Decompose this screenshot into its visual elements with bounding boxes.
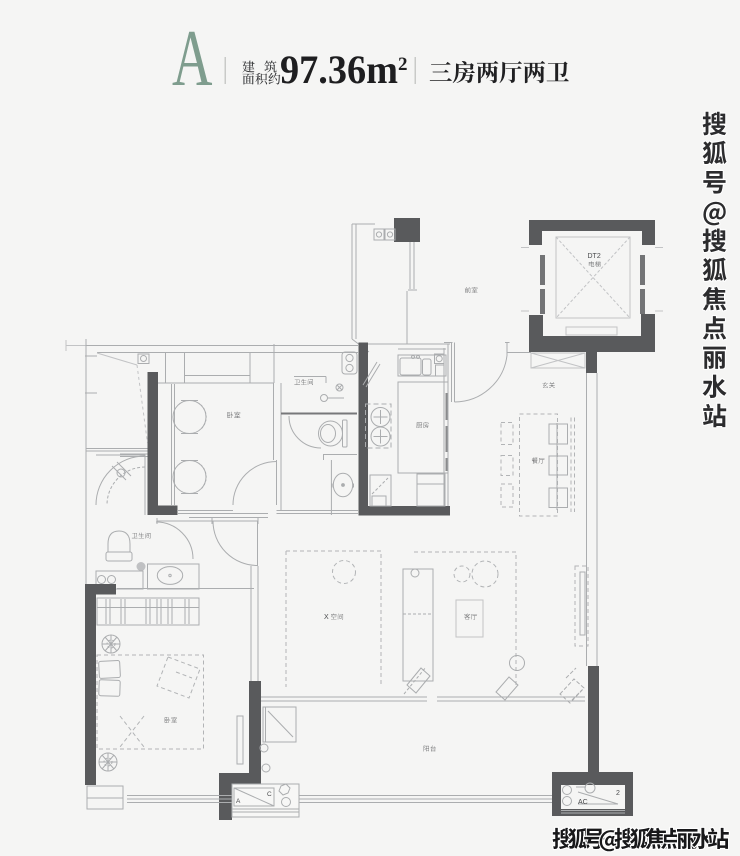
svg-text:A: A [236,798,241,805]
svg-text:A: A [172,13,213,102]
svg-text:2: 2 [616,790,620,797]
svg-text:97.36m: 97.36m [280,47,398,92]
svg-text:DT2: DT2 [588,253,601,260]
svg-text:2: 2 [398,54,408,75]
svg-text:X: X [324,614,329,621]
svg-text:AC: AC [578,799,588,806]
svg-text:C: C [267,791,272,798]
